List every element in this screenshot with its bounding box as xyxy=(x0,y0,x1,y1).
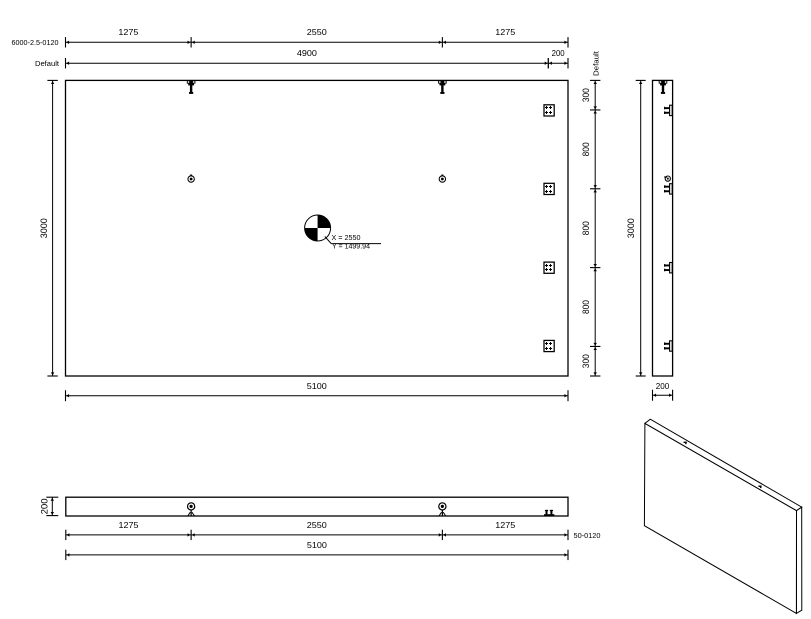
svg-text:800: 800 xyxy=(581,221,591,235)
svg-text:6000-2.5-0120: 6000-2.5-0120 xyxy=(12,38,59,47)
svg-text:3000: 3000 xyxy=(39,218,49,238)
svg-text:4900: 4900 xyxy=(297,49,318,58)
svg-text:800: 800 xyxy=(581,142,591,156)
svg-text:Y = 1499.94: Y = 1499.94 xyxy=(332,242,370,251)
svg-text:5100: 5100 xyxy=(307,541,328,550)
svg-text:300: 300 xyxy=(581,88,591,102)
svg-text:1275: 1275 xyxy=(495,521,516,530)
svg-text:1275: 1275 xyxy=(495,28,516,37)
svg-text:50-0120: 50-0120 xyxy=(574,531,601,540)
svg-text:200: 200 xyxy=(39,498,49,514)
svg-text:2550: 2550 xyxy=(307,28,328,37)
svg-text:200: 200 xyxy=(656,382,670,391)
svg-text:Default: Default xyxy=(592,50,601,76)
svg-text:5100: 5100 xyxy=(307,382,328,391)
svg-text:1275: 1275 xyxy=(118,521,139,530)
svg-text:200: 200 xyxy=(552,49,566,58)
svg-text:1275: 1275 xyxy=(118,28,139,37)
svg-text:2550: 2550 xyxy=(307,521,328,530)
svg-text:3000: 3000 xyxy=(626,218,636,238)
svg-text:Default: Default xyxy=(35,59,60,68)
svg-text:800: 800 xyxy=(581,300,591,314)
svg-text:300: 300 xyxy=(581,354,591,368)
